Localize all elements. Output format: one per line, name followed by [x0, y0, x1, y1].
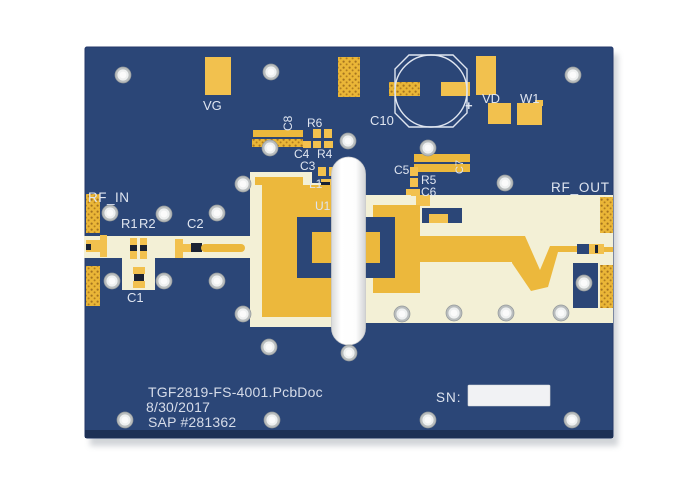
silkscreen-label-c7: C7	[454, 160, 466, 174]
mounting-hole	[102, 205, 118, 221]
mounting-hole	[209, 273, 225, 289]
doc-name-text: TGF2819-FS-4001.PcbDoc	[148, 384, 323, 400]
mounting-hole	[156, 206, 172, 222]
pcb-photo: VG C8 R6 C10 + VD W1 C4 R4 C3 L1 U1 C5 R…	[0, 0, 700, 500]
pcb-canvas: VG C8 R6 C10 + VD W1 C4 R4 C3 L1 U1 C5 R…	[0, 0, 700, 500]
output-pad-gap	[595, 245, 598, 253]
sn-blank-box	[468, 385, 550, 406]
mounting-hole	[261, 339, 277, 355]
c3-pad	[318, 167, 326, 176]
silkscreen-label-c2: C2	[187, 216, 204, 231]
mounting-hole	[262, 140, 278, 156]
rf-in-pin-gap	[86, 244, 91, 250]
output-microstrip	[420, 236, 512, 262]
mounting-hole	[565, 67, 581, 83]
silkscreen-label-c10: C10	[370, 113, 394, 128]
r5-pad	[410, 178, 418, 187]
silkscreen-label-c1: C1	[127, 290, 144, 305]
mounting-hole	[340, 133, 356, 149]
mounting-hole	[235, 306, 251, 322]
silkscreen-label-c3: C3	[300, 159, 316, 173]
silkscreen-label-rf-in: RF_IN	[88, 190, 130, 205]
mounting-hole	[156, 273, 172, 289]
date-text: 8/30/2017	[146, 399, 210, 415]
c2-pad	[175, 239, 183, 258]
edge-via-strip	[600, 197, 613, 233]
board-slot	[332, 157, 366, 345]
mounting-hole	[564, 412, 580, 428]
c5-pad	[410, 167, 418, 176]
silkscreen-label-vg: VG	[203, 98, 222, 113]
vd-pad	[488, 103, 511, 124]
via-stitched-pad	[338, 57, 360, 97]
mounting-hole	[235, 176, 251, 192]
rf-out-launch-trace	[604, 247, 613, 252]
mounting-hole	[341, 345, 357, 361]
vd-feed-pad	[476, 56, 496, 95]
notch-pad	[429, 214, 448, 223]
mounting-hole	[264, 412, 280, 428]
mounting-hole	[420, 412, 436, 428]
sn-label: SN:	[436, 390, 462, 405]
silkscreen-label-c5: C5	[394, 163, 410, 177]
mounting-hole	[104, 273, 120, 289]
c1-component-gap	[134, 274, 144, 281]
board-bottom-edge	[85, 430, 613, 438]
output-trace	[566, 246, 577, 252]
silkscreen-label-w1: W1	[520, 91, 540, 106]
c1-pad	[133, 267, 145, 274]
silkscreen-label-rf-out: RF_OUT	[551, 180, 610, 195]
c2-component-gap	[191, 243, 202, 252]
mounting-hole	[446, 305, 462, 321]
silkscreen-label-l1: L1	[309, 177, 323, 191]
c10-pad-left	[389, 82, 420, 96]
r1-component-gap	[130, 245, 137, 251]
silkscreen-label-u1: U1	[315, 199, 331, 213]
gate-trace	[255, 177, 303, 185]
mounting-hole	[115, 67, 131, 83]
silkscreen-label-r6: R6	[307, 116, 323, 130]
silkscreen-label-c10-plus: +	[465, 98, 473, 113]
input-microstrip	[201, 244, 245, 252]
mounting-hole	[209, 205, 225, 221]
edge-via-strip	[600, 265, 613, 308]
vg-pad	[205, 57, 231, 95]
silkscreen-label-vd: VD	[482, 91, 500, 106]
sap-number-text: SAP #281362	[148, 414, 236, 430]
c1-pad	[133, 281, 145, 288]
silkscreen-label-r2: R2	[139, 216, 156, 231]
mounting-hole	[576, 275, 592, 291]
mounting-hole	[553, 305, 569, 321]
silkscreen-label-c6: C6	[421, 185, 437, 199]
mounting-hole	[420, 140, 436, 156]
r6-pad	[313, 129, 321, 138]
r6-pad	[324, 129, 332, 138]
rf-in-launch-pad	[100, 235, 107, 257]
c2-pad	[183, 244, 192, 252]
c8-trace	[253, 130, 303, 137]
c6-pad	[406, 189, 413, 195]
w1-pad	[517, 103, 542, 125]
edge-via-strip	[86, 266, 100, 306]
silkscreen-label-c8: C8	[281, 115, 295, 131]
mounting-hole	[498, 305, 514, 321]
mounting-hole	[497, 175, 513, 191]
r2-component-gap	[140, 245, 147, 251]
silkscreen-label-r1: R1	[121, 216, 138, 231]
mounting-hole	[117, 412, 133, 428]
mounting-hole	[263, 64, 279, 80]
mounting-hole	[394, 306, 410, 322]
silkscreen-label-r4: R4	[317, 147, 333, 161]
output-component-gap	[577, 244, 589, 254]
